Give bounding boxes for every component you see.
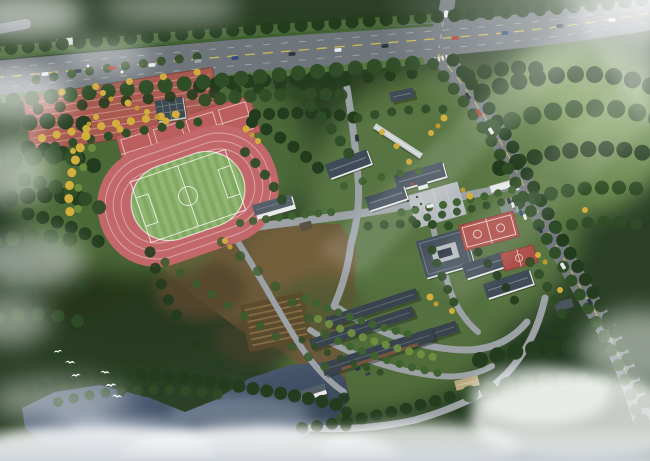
ginkgo-tree (449, 308, 455, 314)
ginkgo-tree (70, 148, 76, 154)
ginkgo-tree (255, 138, 261, 144)
ginkgo-tree (535, 252, 541, 258)
gold-tree (87, 122, 92, 127)
ginkgo-tree (243, 126, 250, 133)
ginkgo-tree (163, 118, 170, 125)
gold-tree (250, 133, 255, 138)
ginkgo-tree (467, 193, 474, 200)
car (334, 48, 341, 52)
gold-tree (543, 260, 548, 265)
tree-row (556, 222, 648, 228)
ginkgo-tree (427, 294, 434, 301)
mist-cloud (60, 37, 150, 73)
scene (0, 0, 650, 461)
ginkgo-tree (222, 238, 228, 244)
car (148, 63, 155, 67)
gold-tree (135, 106, 140, 111)
bottom-fog-band (0, 425, 650, 461)
ginkgo-tree (100, 90, 106, 96)
gold-tree (434, 302, 439, 307)
gold-tree (155, 115, 160, 120)
ginkgo-tree (428, 130, 434, 136)
ginkgo-tree (144, 109, 150, 115)
ginkgo-tree (582, 207, 588, 213)
campus-aerial-rendering (0, 0, 650, 461)
mist-cloud (470, 365, 610, 425)
ginkgo-tree (557, 287, 563, 293)
gold-tree (436, 124, 441, 129)
gold-tree (109, 97, 114, 102)
gold-tree (228, 245, 233, 250)
ginkgo-tree (125, 100, 132, 107)
car (231, 56, 238, 60)
gold-tree (461, 188, 466, 193)
ginkgo-tree (117, 126, 124, 133)
car (288, 52, 295, 56)
car (194, 59, 201, 63)
ginkgo-tree (93, 114, 99, 120)
